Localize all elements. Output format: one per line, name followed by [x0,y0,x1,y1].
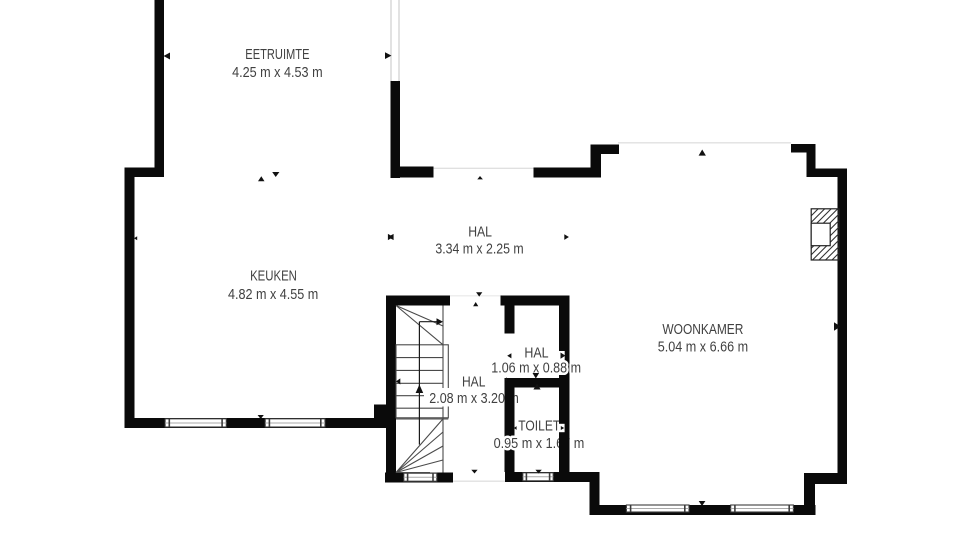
svg-text:HAL: HAL [468,224,492,240]
svg-text:HAL: HAL [524,345,548,361]
svg-text:0.95 m x 1.67 m: 0.95 m x 1.67 m [494,436,585,452]
svg-text:4.25 m x 4.53 m: 4.25 m x 4.53 m [232,65,323,81]
svg-text:HAL: HAL [462,375,485,391]
svg-text:WOONKAMER: WOONKAMER [662,322,743,338]
svg-text:TOILET: TOILET [518,418,560,434]
svg-text:KEUKEN: KEUKEN [250,268,297,284]
svg-text:4.82 m x 4.55 m: 4.82 m x 4.55 m [228,287,318,303]
svg-text:3.34 m x 2.25 m: 3.34 m x 2.25 m [435,241,523,257]
svg-text:5.04 m x 6.66 m: 5.04 m x 6.66 m [658,340,748,356]
svg-text:EETRUIMTE: EETRUIMTE [245,47,309,63]
